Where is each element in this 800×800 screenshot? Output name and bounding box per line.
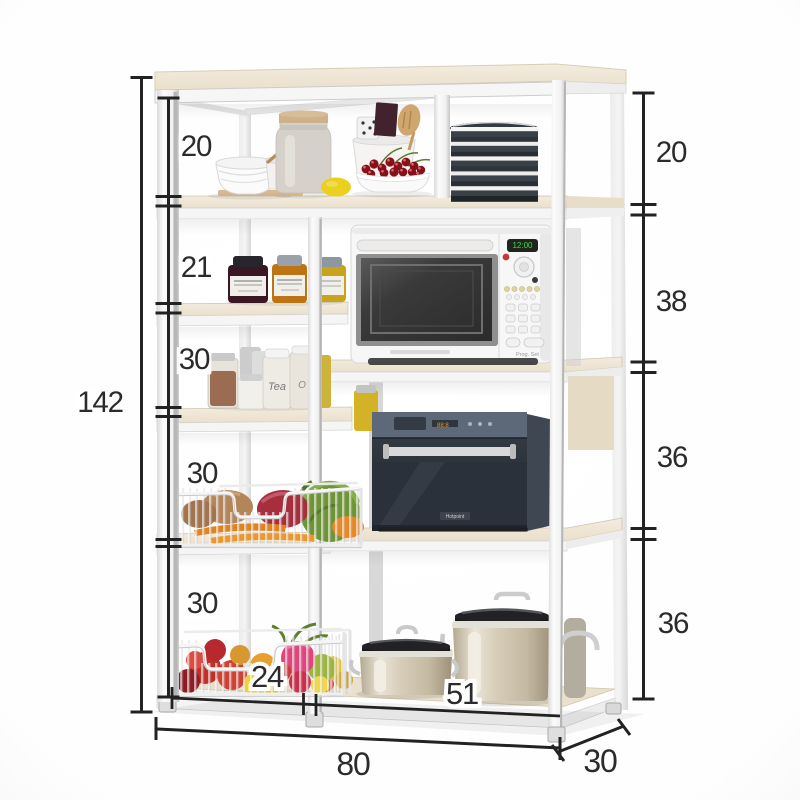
svg-text:Prog. Set: Prog. Set	[516, 352, 539, 358]
svg-text:30: 30	[583, 743, 617, 779]
svg-text:Tea: Tea	[268, 381, 286, 393]
svg-text:24: 24	[251, 659, 284, 694]
svg-text:38: 38	[656, 285, 687, 318]
svg-text:20: 20	[181, 130, 212, 163]
svg-text:88:8: 88:8	[437, 423, 449, 429]
svg-text:142: 142	[77, 386, 123, 419]
svg-text:30: 30	[179, 343, 210, 376]
svg-text:O: O	[298, 380, 306, 391]
svg-text:Hotpoint: Hotpoint	[446, 514, 465, 520]
svg-text:21: 21	[181, 251, 211, 284]
svg-text:12:00: 12:00	[512, 241, 533, 250]
svg-text:80: 80	[336, 746, 370, 782]
svg-text:30: 30	[187, 457, 218, 490]
svg-text:30: 30	[187, 587, 218, 620]
svg-text:36: 36	[658, 607, 689, 640]
svg-text:51: 51	[446, 676, 478, 711]
svg-text:36: 36	[657, 441, 688, 474]
svg-text:20: 20	[656, 136, 687, 169]
